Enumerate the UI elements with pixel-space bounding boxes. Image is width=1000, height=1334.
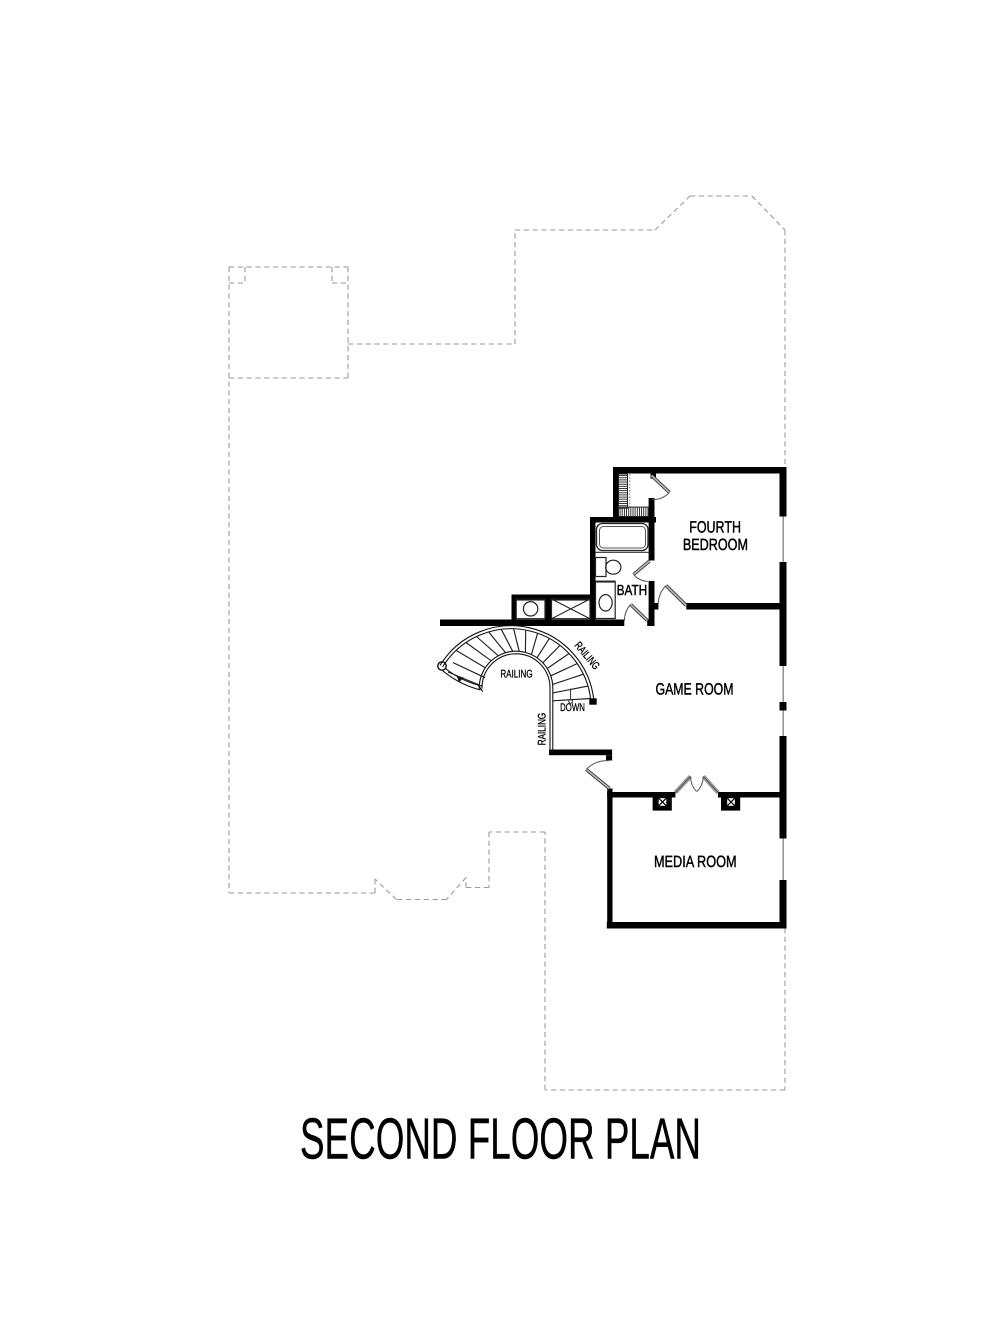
svg-text:GAME ROOM: GAME ROOM — [656, 681, 734, 699]
svg-text:DOWN: DOWN — [560, 702, 585, 714]
svg-text:RAILING: RAILING — [537, 713, 549, 746]
svg-text:SECOND FLOOR PLAN: SECOND FLOOR PLAN — [300, 1106, 701, 1171]
svg-text:RAILING: RAILING — [500, 669, 532, 681]
svg-text:RAILING: RAILING — [572, 640, 602, 672]
svg-text:FOURTH: FOURTH — [689, 518, 741, 536]
svg-text:MEDIA ROOM: MEDIA ROOM — [654, 853, 737, 871]
svg-text:BATH: BATH — [617, 583, 648, 599]
svg-text:BEDROOM: BEDROOM — [683, 536, 748, 554]
